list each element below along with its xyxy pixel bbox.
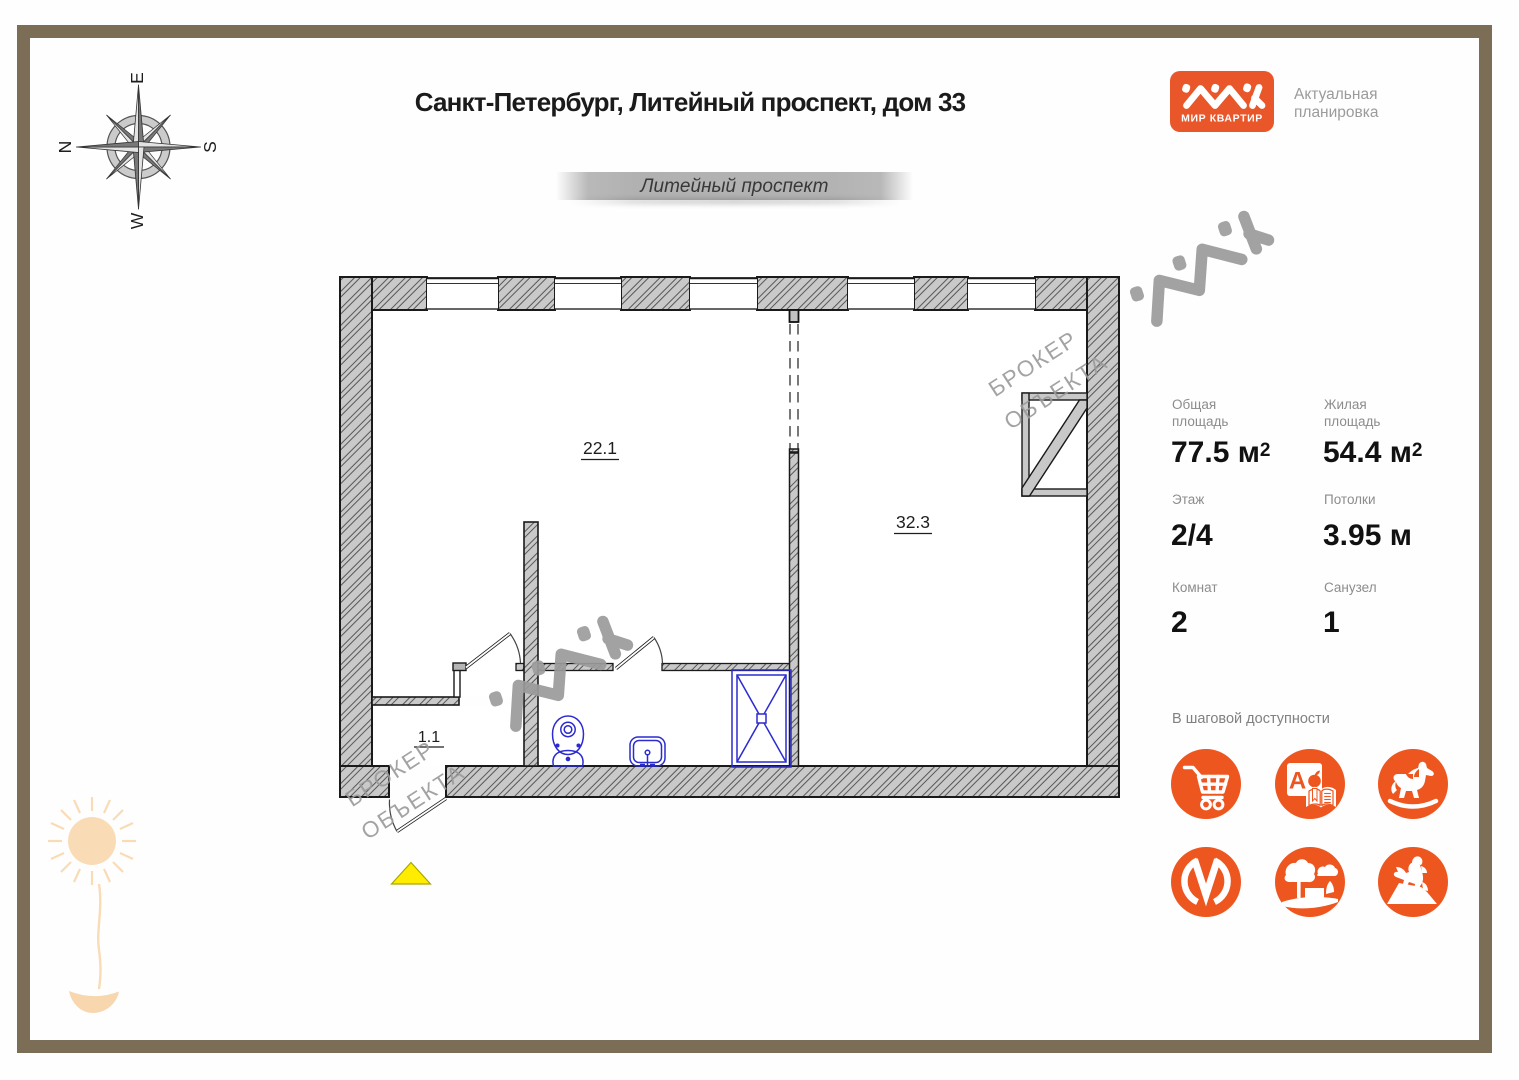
svg-text:S: S bbox=[200, 141, 220, 153]
svg-text:32.3: 32.3 bbox=[896, 512, 930, 532]
svg-text:E: E bbox=[127, 72, 147, 84]
svg-text:22.1: 22.1 bbox=[583, 438, 617, 458]
svg-text:N: N bbox=[55, 141, 75, 154]
svg-text:МИР КВАРТИР: МИР КВАРТИР bbox=[1181, 113, 1263, 125]
svg-text:А: А bbox=[1289, 768, 1306, 795]
svg-text:W: W bbox=[127, 212, 147, 229]
